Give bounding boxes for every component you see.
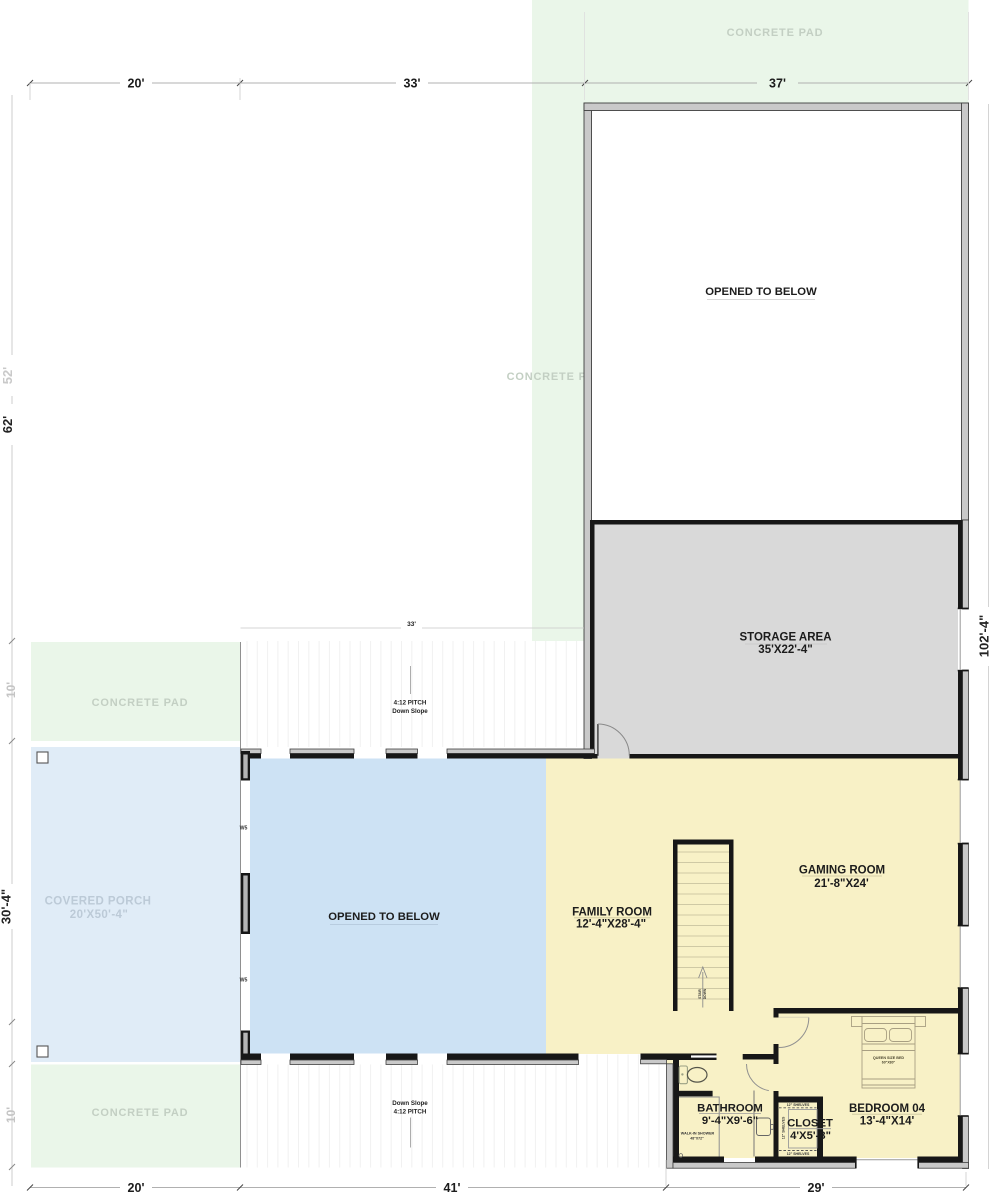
svg-text:CONCRETE PAD: CONCRETE PAD [727,27,824,39]
svg-text:OPENED TO BELOW: OPENED TO BELOW [328,911,440,923]
svg-text:37': 37' [769,77,786,91]
svg-text:30'-4": 30'-4" [0,889,14,924]
svg-text:41': 41' [444,1181,461,1195]
svg-text:CLOSET: CLOSET [787,1118,833,1130]
svg-text:W5: W5 [240,978,248,984]
svg-text:12'-4"X28'-4": 12'-4"X28'-4" [576,919,646,931]
svg-text:CONCRETE PAD: CONCRETE PAD [92,697,189,709]
svg-text:4:12 PITCH: 4:12 PITCH [394,700,427,707]
svg-text:20': 20' [128,77,145,91]
svg-text:GAMING ROOM: GAMING ROOM [799,865,885,877]
svg-text:BEDROOM 04: BEDROOM 04 [849,1103,926,1115]
svg-text:10': 10' [4,682,18,698]
svg-text:COVERED PORCH: COVERED PORCH [45,896,152,908]
svg-text:STORAGE AREA: STORAGE AREA [739,632,831,644]
svg-text:48"X72": 48"X72" [690,1137,704,1141]
svg-text:OPENED TO BELOW: OPENED TO BELOW [705,286,817,298]
svg-text:Down Slope: Down Slope [392,708,428,715]
svg-text:29': 29' [808,1181,825,1195]
svg-text:12" SHELVES: 12" SHELVES [787,1103,810,1107]
svg-text:FAMILY ROOM: FAMILY ROOM [572,907,652,919]
svg-text:12" SHELVES: 12" SHELVES [787,1152,810,1156]
svg-text:CONCRETE PAD: CONCRETE PAD [92,1107,189,1119]
svg-text:60"X80": 60"X80" [882,1061,896,1065]
svg-text:W5: W5 [240,826,248,832]
svg-text:35'X22'-4": 35'X22'-4" [758,644,812,656]
svg-text:BATHROOM: BATHROOM [697,1103,763,1115]
svg-text:12" SHELVES: 12" SHELVES [781,1116,785,1139]
svg-text:33': 33' [404,77,421,91]
svg-text:QUEEN SIZE BED: QUEEN SIZE BED [873,1056,904,1060]
svg-text:33': 33' [407,621,416,628]
svg-text:STAIR: STAIR [698,989,702,999]
svg-text:21'-8"X24': 21'-8"X24' [814,878,869,890]
svg-text:DOWN: DOWN [703,988,707,999]
svg-text:10': 10' [4,1107,18,1123]
svg-text:102'-4": 102'-4" [977,615,992,658]
svg-text:4'X5'-8": 4'X5'-8" [790,1130,831,1142]
svg-text:20': 20' [128,1181,145,1195]
svg-text:4:12 PITCH: 4:12 PITCH [394,1109,427,1116]
svg-text:13'-4"X14': 13'-4"X14' [860,1116,915,1128]
svg-text:9'-4"X9'-6": 9'-4"X9'-6" [702,1115,758,1127]
svg-text:Down Slope: Down Slope [392,1100,428,1107]
svg-text:20'X50'-4": 20'X50'-4" [70,909,128,921]
svg-text:62': 62' [0,416,15,434]
svg-text:52': 52' [0,367,15,385]
svg-text:WALK-IN SHOWER: WALK-IN SHOWER [681,1131,715,1135]
